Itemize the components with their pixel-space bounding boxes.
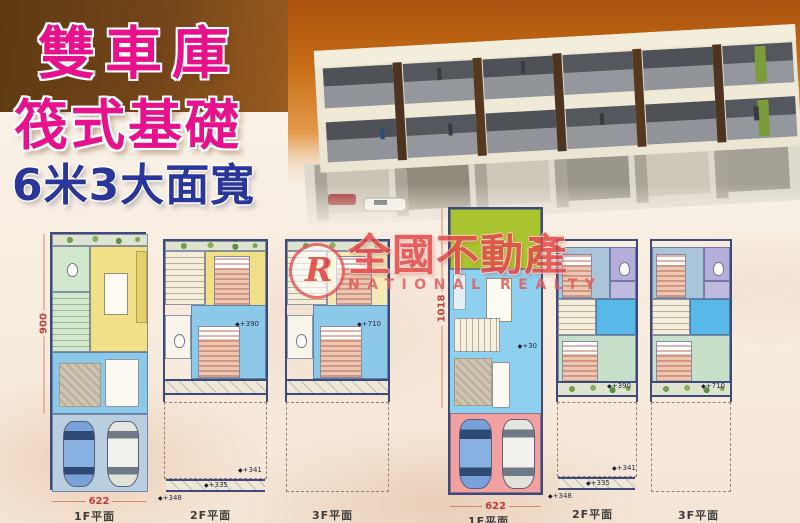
- garage: [52, 414, 148, 492]
- dining-kitchen: [90, 246, 148, 352]
- bathroom-purple: [610, 247, 636, 281]
- headline-width: 6米3大面寬: [12, 164, 255, 208]
- car-top-view: [502, 419, 535, 489]
- staircase: [454, 318, 500, 352]
- plan-label: 2F平面: [190, 507, 231, 523]
- closet: [704, 281, 730, 299]
- car-top-view: [107, 421, 139, 487]
- red-car: [328, 194, 356, 205]
- plan-label: 2F平面: [572, 506, 613, 522]
- roof-outline: [651, 402, 731, 492]
- headline-double-garage: 雙車庫: [38, 26, 239, 83]
- bathroom: [165, 315, 191, 359]
- bedroom-blue: ◆+390: [191, 305, 266, 379]
- closet: [610, 281, 636, 299]
- level-annotation: ◆+341: [612, 464, 636, 472]
- staircase: [165, 251, 205, 305]
- bed: [320, 326, 362, 378]
- realty-logo-icon: R: [289, 243, 345, 299]
- front-balcony: [287, 379, 388, 395]
- plan-label: 1F平面: [468, 513, 509, 523]
- staircase: [652, 299, 690, 335]
- level-annotation: ◆+710: [357, 320, 381, 328]
- dimension-900: 900: [39, 234, 50, 414]
- level-annotation: ◆+30: [518, 342, 537, 350]
- floorplan-right-3f: ◆+710: [650, 239, 732, 402]
- bedroom-bluegray: [652, 247, 704, 299]
- balcony-planter: [165, 241, 266, 251]
- watermark: R 全國不動產 NATIONAL REALTY: [289, 235, 602, 299]
- staircase: [52, 292, 90, 352]
- plan-label: 3F平面: [678, 507, 719, 523]
- front-balcony: [165, 379, 266, 395]
- building-rendering: [288, 0, 800, 230]
- dimension-622: 622: [52, 496, 146, 507]
- bed: [656, 254, 686, 298]
- headline-raft-foundation: 筏式基礎: [14, 99, 242, 153]
- car-top-view: [459, 419, 492, 489]
- level-annotation: ◆+348: [548, 492, 572, 500]
- white-car: [364, 198, 406, 211]
- plan-label: 3F平面: [312, 507, 353, 523]
- level-annotation: ◆+341: [238, 466, 262, 474]
- car-top-view: [63, 421, 95, 487]
- staircase: [558, 299, 596, 335]
- level-annotation: ◆+335: [204, 481, 228, 489]
- garage: [450, 413, 541, 493]
- watermark-brand-en: NATIONAL REALTY: [348, 277, 602, 293]
- roof-outline: [286, 402, 389, 492]
- hallway: [596, 299, 636, 335]
- level-annotation: ◆+390: [235, 320, 259, 328]
- level-annotation: ◆+348: [158, 494, 182, 502]
- bathroom: [52, 246, 90, 292]
- entry-planter: [52, 234, 148, 246]
- flyer-canvas: 雙車庫 筏式基礎 6米3大面寬 R 全國不動產 NATIONAL REALTY: [0, 0, 800, 523]
- watermark-brand: 全國不動產: [348, 235, 602, 278]
- bed: [198, 326, 240, 378]
- level-annotation: ◆+390: [607, 382, 631, 390]
- level-annotation: ◆+710: [701, 382, 725, 390]
- living-room: [52, 352, 148, 414]
- floorplan-left-1f: 900 622 1F平面: [50, 232, 146, 490]
- level-annotation: ◆+335: [586, 479, 610, 487]
- building-rendering-panel: [288, 0, 800, 230]
- bathroom: [287, 315, 313, 359]
- floorplan-left-2f: ◆+390: [163, 239, 268, 402]
- dimension-622: 622: [450, 501, 541, 512]
- hallway: [690, 299, 730, 335]
- bed: [214, 256, 250, 306]
- bathroom-purple: [704, 247, 730, 281]
- plan-label: 1F平面: [74, 508, 115, 523]
- bedroom-blue: ◆+710: [313, 305, 388, 379]
